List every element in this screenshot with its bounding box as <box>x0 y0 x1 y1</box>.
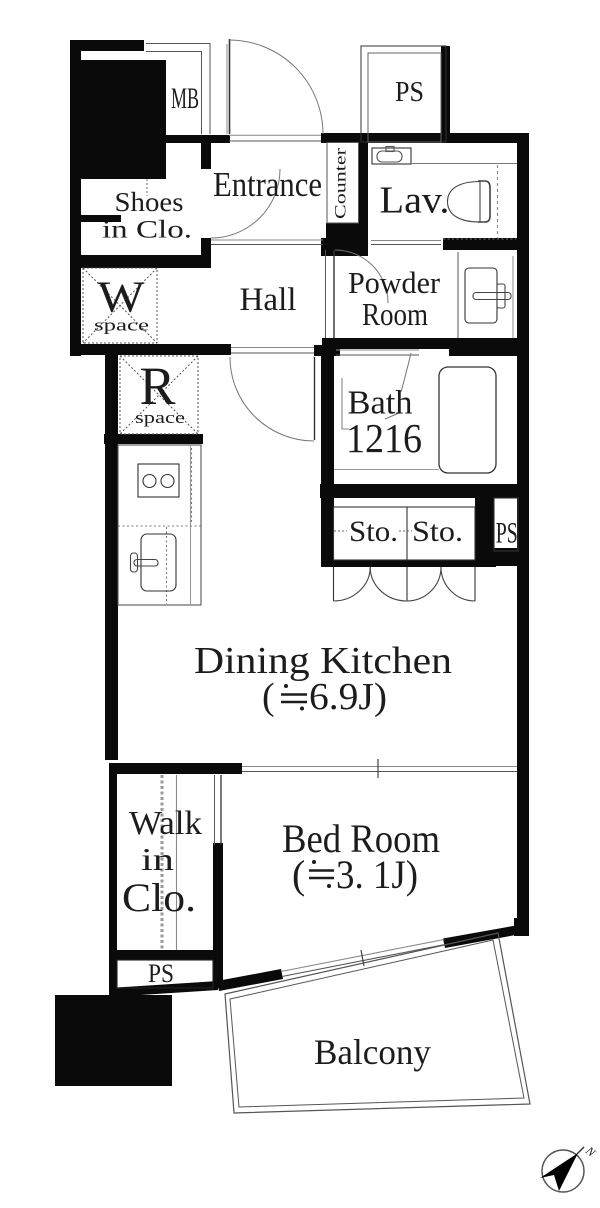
svg-text:Walk: Walk <box>129 805 202 842</box>
svg-text:Counter: Counter <box>333 147 350 219</box>
svg-text:(: ( <box>262 676 275 718</box>
svg-text:R: R <box>139 356 175 416</box>
svg-text:MB: MB <box>171 82 199 115</box>
svg-text:Sto.: Sto. <box>349 515 398 548</box>
svg-text:PS: PS <box>148 959 174 988</box>
svg-text:Powder: Powder <box>348 265 441 300</box>
svg-text:Lav.: Lav. <box>380 180 450 222</box>
svg-text:(: ( <box>292 852 305 897</box>
svg-text:PS: PS <box>395 76 424 108</box>
svg-text:Hall: Hall <box>240 282 297 318</box>
svg-text:in Clo.: in Clo. <box>102 217 192 244</box>
svg-text:6.9J): 6.9J) <box>309 676 387 718</box>
svg-text:space: space <box>94 316 149 335</box>
svg-text:Room: Room <box>362 296 428 332</box>
svg-text:Shoes: Shoes <box>115 187 184 217</box>
svg-text:W: W <box>98 273 146 322</box>
svg-text:3. 1J): 3. 1J) <box>336 852 418 897</box>
svg-text:Sto.: Sto. <box>412 515 463 548</box>
svg-text:Clo.: Clo. <box>122 875 196 920</box>
svg-text:in: in <box>141 841 174 877</box>
svg-text:Entrance: Entrance <box>213 165 322 204</box>
svg-text:PS: PS <box>496 517 518 550</box>
svg-text:space: space <box>135 408 185 427</box>
svg-text:Balcony: Balcony <box>314 1032 431 1072</box>
svg-text:1216: 1216 <box>346 415 422 461</box>
